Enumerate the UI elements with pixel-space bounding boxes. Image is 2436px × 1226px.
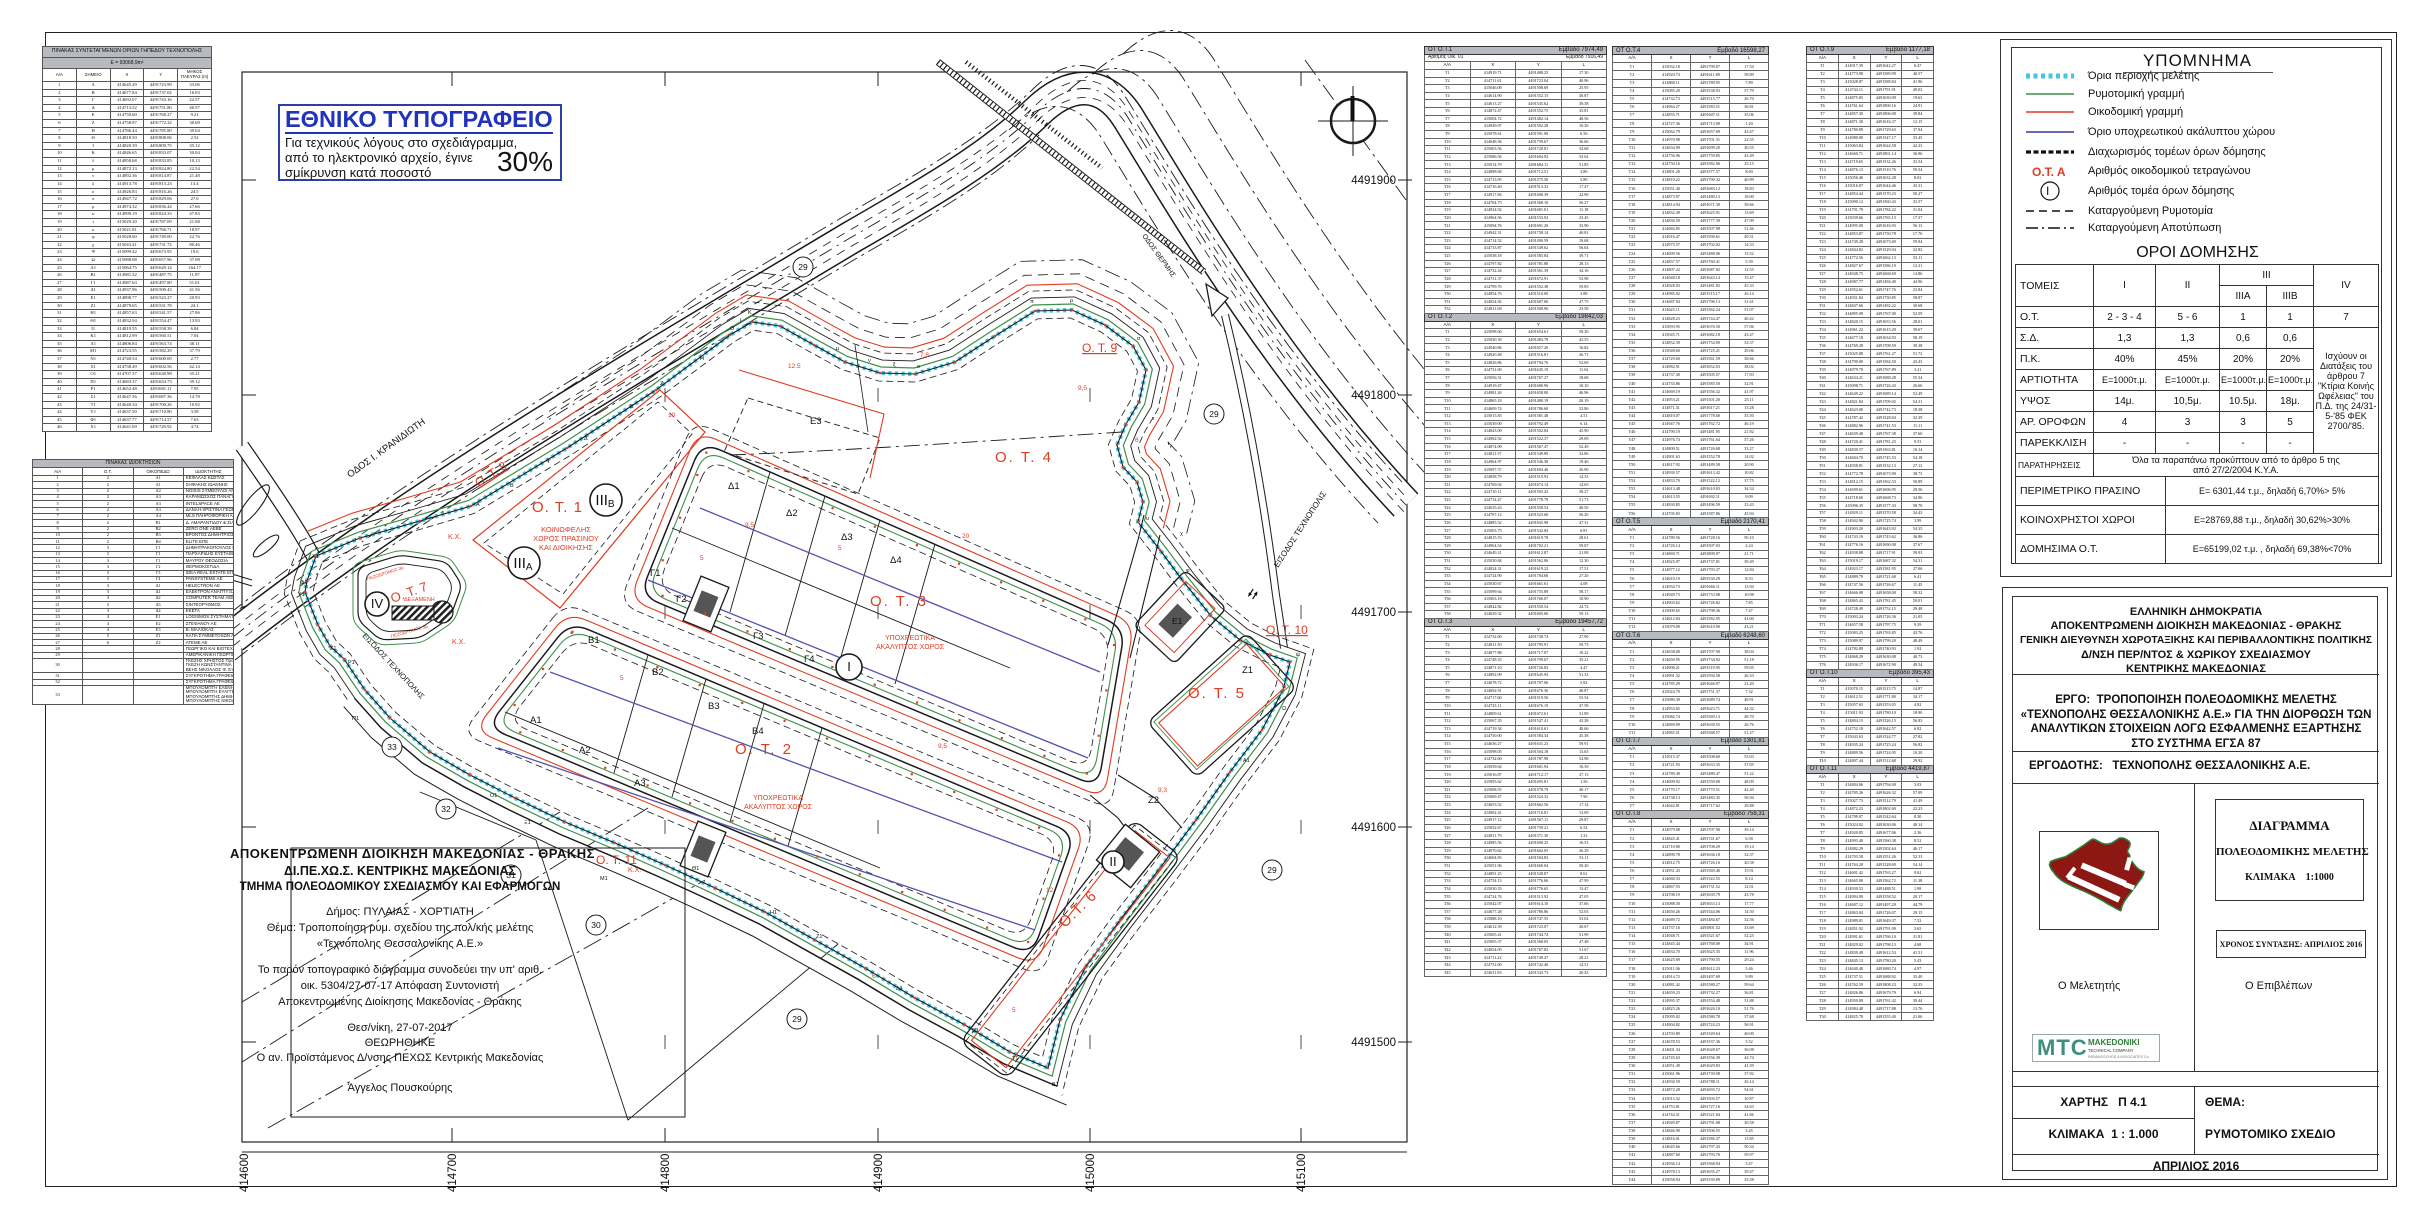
svg-text:TECHNICAL COMPANY: TECHNICAL COMPANY xyxy=(2088,1048,2134,1053)
svg-text:Α2: Α2 xyxy=(579,745,591,756)
svg-text:6: 6 xyxy=(1135,437,1139,444)
svg-text:Κ.Χ.: Κ.Χ. xyxy=(448,534,461,541)
svg-text:Τ1: Τ1 xyxy=(1012,1056,1018,1062)
svg-text:Δ4: Δ4 xyxy=(890,555,902,566)
svg-text:Ε1: Ε1 xyxy=(1172,616,1183,626)
svg-text:7,8: 7,8 xyxy=(920,352,929,359)
svg-text:Π1: Π1 xyxy=(352,716,359,722)
svg-text:Ο. Τ. 9: Ο. Τ. 9 xyxy=(1082,341,1117,355)
svg-text:Α3: Α3 xyxy=(634,778,646,789)
svg-text:9,5: 9,5 xyxy=(1078,385,1087,392)
svg-text:12.5: 12.5 xyxy=(788,363,801,370)
svg-text:Ο. Τ. 10: Ο. Τ. 10 xyxy=(1266,623,1308,637)
svg-text:Ξ1: Ξ1 xyxy=(524,820,531,826)
svg-text:29: 29 xyxy=(798,262,808,272)
svg-text:σ: σ xyxy=(1137,336,1141,342)
svg-text:33: 33 xyxy=(387,742,397,752)
svg-text:Δ3: Δ3 xyxy=(841,532,853,543)
svg-text:μ: μ xyxy=(836,346,839,352)
svg-text:Υ1: Υ1 xyxy=(298,592,305,598)
svg-text:Ρ1: Ρ1 xyxy=(348,660,355,666)
svg-text:Κ.Χ.: Κ.Χ. xyxy=(452,639,465,646)
svg-text:ν: ν xyxy=(868,358,871,364)
svg-text:ΙV: ΙV xyxy=(371,596,384,611)
svg-text:4491500: 4491500 xyxy=(1351,1037,1396,1049)
svg-text:Ο1: Ο1 xyxy=(490,793,497,799)
svg-text:ψ: ψ xyxy=(1296,652,1300,658)
svg-text:29: 29 xyxy=(1209,409,1219,419)
svg-text:ΥΠΟΧΡΕΩΤΙΚΑ: ΥΠΟΧΡΕΩΤΙΚΑ xyxy=(753,795,803,802)
svg-text:414900: 414900 xyxy=(873,1154,885,1192)
svg-text:PARAMOSCHOS & ASSOCIATES Co: PARAMOSCHOS & ASSOCIATES Co xyxy=(2088,1055,2149,1059)
svg-text:5: 5 xyxy=(838,545,842,552)
svg-text:4491900: 4491900 xyxy=(1351,175,1396,187)
svg-text:Η: Η xyxy=(700,356,704,362)
svg-text:φ: φ xyxy=(1186,568,1190,574)
svg-text:Ο. Τ. 4: Ο. Τ. 4 xyxy=(995,449,1053,466)
svg-text:414600: 414600 xyxy=(239,1154,251,1192)
svg-text:Σ1: Σ1 xyxy=(330,646,336,652)
svg-text:Φ1: Φ1 xyxy=(300,580,307,586)
svg-text:Γ3: Γ3 xyxy=(753,631,764,642)
svg-text:MAKEDONIKI: MAKEDONIKI xyxy=(2088,1038,2140,1047)
svg-text:Ο. Τ. 5: Ο. Τ. 5 xyxy=(1188,685,1246,702)
svg-text:Γ: Γ xyxy=(548,459,551,465)
svg-text:Β4: Β4 xyxy=(752,726,764,737)
svg-text:5: 5 xyxy=(1012,1007,1016,1014)
svg-text:Ζ1: Ζ1 xyxy=(1242,665,1253,676)
svg-text:ΑΚΑΛΥΠΤΟΣ ΧΩΡΟΣ: ΑΚΑΛΥΠΤΟΣ ΧΩΡΟΣ xyxy=(744,804,813,811)
svg-text:415000: 415000 xyxy=(1085,1154,1097,1192)
svg-text:Η1: Η1 xyxy=(770,910,777,916)
svg-text:Θ1: Θ1 xyxy=(692,866,699,872)
svg-text:414800: 414800 xyxy=(660,1154,672,1192)
svg-text:υ: υ xyxy=(1146,516,1149,522)
svg-text:Ε: Ε xyxy=(630,404,634,410)
svg-text:ΧΩΡΟΣ ΠΡΑΣΙΝΟΥ: ΧΩΡΟΣ ΠΡΑΣΙΝΟΥ xyxy=(533,534,599,543)
svg-text:MTC: MTC xyxy=(2037,1035,2088,1060)
svg-text:29: 29 xyxy=(792,1014,802,1024)
svg-text:Α1: Α1 xyxy=(530,715,542,726)
svg-text:Χ1: Χ1 xyxy=(312,554,319,560)
svg-text:9,3: 9,3 xyxy=(1158,787,1167,794)
svg-text:9,5: 9,5 xyxy=(938,743,947,750)
svg-text:Ο. Τ. 11: Ο. Τ. 11 xyxy=(596,853,637,867)
svg-text:9,5: 9,5 xyxy=(745,522,754,529)
svg-text:Δ1: Δ1 xyxy=(728,481,740,492)
svg-text:ΥΠΟΧΡΕΩΤΙΚΑ: ΥΠΟΧΡΕΩΤΙΚΑ xyxy=(885,635,935,642)
svg-text:ΔΕΞΑΜΕΝΗ: ΔΕΞΑΜΕΝΗ xyxy=(404,597,435,603)
svg-text:π: π xyxy=(1030,299,1034,305)
svg-text:Θ: Θ xyxy=(730,326,735,332)
svg-text:Γ2: Γ2 xyxy=(676,594,687,605)
svg-text:Ζ1: Ζ1 xyxy=(816,934,822,940)
svg-text:τ: τ xyxy=(1152,416,1155,422)
svg-text:Δ2: Δ2 xyxy=(786,508,798,519)
svg-text:Ε1: Ε1 xyxy=(972,1028,979,1034)
svg-text:ΕΙΣΟΔΟΣ ΤΕΧΝΟΠΟΛΙΣ: ΕΙΣΟΔΟΣ ΤΕΧΝΟΠΟΛΙΣ xyxy=(1272,490,1328,570)
svg-text:Α1: Α1 xyxy=(1243,758,1250,764)
svg-text:4491600: 4491600 xyxy=(1351,822,1396,834)
svg-text:32: 32 xyxy=(441,804,451,814)
svg-text:Ε3: Ε3 xyxy=(810,416,822,427)
svg-text:ρ: ρ xyxy=(1070,298,1073,304)
svg-text:ΕΙΣΟΔΟΣ ΤΕΧΝΟΠΟΛΗΣ: ΕΙΣΟΔΟΣ ΤΕΧΝΟΠΟΛΗΣ xyxy=(361,631,427,701)
svg-text:Γ1: Γ1 xyxy=(650,568,661,579)
svg-text:20: 20 xyxy=(962,533,970,540)
svg-text:ΠΕΖΟΔΡΟΜΟΣ 3μ: ΠΕΖΟΔΡΟΜΟΣ 3μ xyxy=(366,565,404,582)
svg-text:ΑΚΑΛΥΠΤΟΣ ΧΩΡΟΣ: ΑΚΑΛΥΠΤΟΣ ΧΩΡΟΣ xyxy=(876,644,945,651)
svg-text:ο: ο xyxy=(917,364,920,370)
svg-text:ΚΟΙΝΩΦΕΛΗΣ: ΚΟΙΝΩΦΕΛΗΣ xyxy=(541,525,591,534)
svg-text:415100: 415100 xyxy=(1296,1154,1308,1192)
svg-text:Μ1: Μ1 xyxy=(600,876,608,882)
svg-text:Ο. Τ. 2: Ο. Τ. 2 xyxy=(735,741,793,758)
svg-text:Β1: Β1 xyxy=(1052,1082,1059,1088)
svg-text:414700: 414700 xyxy=(447,1154,459,1192)
svg-text:ΙΙ: ΙΙ xyxy=(1109,854,1116,869)
svg-text:5: 5 xyxy=(700,555,704,562)
svg-text:Δ1: Δ1 xyxy=(896,986,903,992)
svg-text:Β2: Β2 xyxy=(652,667,664,678)
svg-text:ΟΔΟΣ Ι. ΚΡΑΝΙΔΙΩΤΗ: ΟΔΟΣ Ι. ΚΡΑΝΙΔΙΩΤΗ xyxy=(345,416,427,480)
svg-text:Γ4: Γ4 xyxy=(804,654,815,665)
svg-text:5: 5 xyxy=(620,675,624,682)
svg-text:6: 6 xyxy=(872,973,876,980)
svg-text:ΚΑΙ ΔΙΟΙΚΗΣΗΣ: ΚΑΙ ΔΙΟΙΚΗΣΗΣ xyxy=(539,543,593,552)
svg-text:29: 29 xyxy=(1267,865,1277,875)
svg-text:Ο. Τ. 1: Ο. Τ. 1 xyxy=(532,499,583,516)
svg-text:Ο. Τ. 3: Ο. Τ. 3 xyxy=(870,593,928,610)
svg-text:Ζ2: Ζ2 xyxy=(1148,795,1159,806)
svg-text:Κ.Χ.: Κ.Χ. xyxy=(628,867,641,874)
svg-text:χ: χ xyxy=(1180,531,1183,537)
svg-text:Κ: Κ xyxy=(748,310,752,316)
svg-text:Β1: Β1 xyxy=(588,635,600,646)
svg-text:Ω: Ω xyxy=(1282,706,1286,712)
svg-text:4491800: 4491800 xyxy=(1351,390,1396,402)
svg-text:Β: Β xyxy=(510,483,514,489)
svg-text:Α: Α xyxy=(476,502,480,508)
svg-text:Δ: Δ xyxy=(584,436,588,442)
svg-text:4491700: 4491700 xyxy=(1351,607,1396,619)
svg-text:30: 30 xyxy=(591,920,601,930)
svg-text:10: 10 xyxy=(668,412,676,419)
svg-text:Β3: Β3 xyxy=(708,701,720,712)
svg-text:Ι: Ι xyxy=(847,659,851,674)
svg-text:12: 12 xyxy=(1046,887,1054,894)
